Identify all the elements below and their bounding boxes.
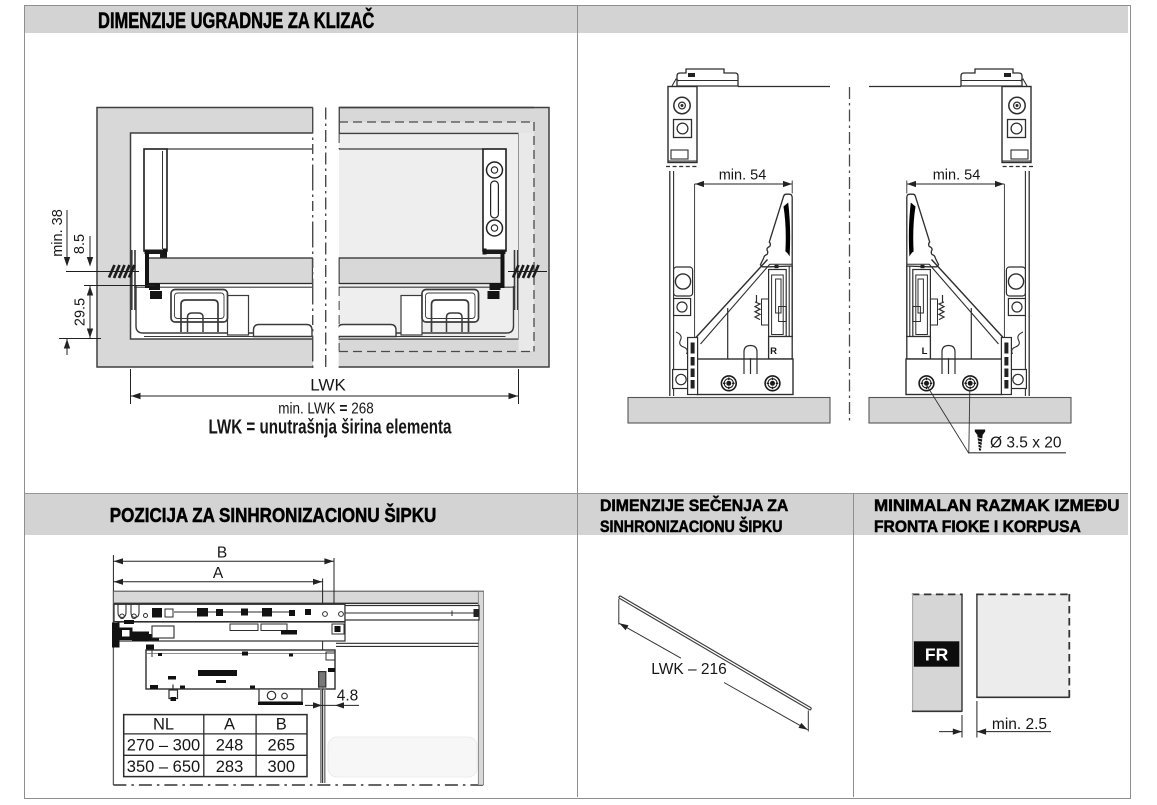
svg-text:Ø 3.5 x 20: Ø 3.5 x 20 <box>990 435 1062 452</box>
svg-text:248: 248 <box>216 737 244 755</box>
svg-text:4.8: 4.8 <box>337 688 359 705</box>
svg-text:R: R <box>770 346 777 357</box>
svg-text:min. 54: min. 54 <box>719 168 767 184</box>
svg-text:350 – 650: 350 – 650 <box>127 758 200 776</box>
svg-text:A: A <box>213 565 224 582</box>
svg-text:B: B <box>217 545 227 562</box>
svg-text:L: L <box>922 346 928 357</box>
svg-text:LWK: LWK <box>310 376 346 395</box>
svg-text:min. 54: min. 54 <box>933 168 981 184</box>
svg-text:A: A <box>224 716 235 734</box>
svg-text:270 – 300: 270 – 300 <box>127 737 200 755</box>
svg-text:B: B <box>276 716 287 734</box>
svg-text:min. 38: min. 38 <box>50 209 66 257</box>
svg-text:29.5: 29.5 <box>73 298 89 326</box>
svg-text:283: 283 <box>216 758 244 776</box>
svg-text:LWK – 216: LWK – 216 <box>651 661 727 678</box>
svg-text:LWK = unutrašnja širina elemen: LWK = unutrašnja širina elementa <box>209 415 453 438</box>
svg-text:300: 300 <box>268 758 296 776</box>
svg-text:8.5: 8.5 <box>72 234 88 254</box>
svg-text:FR: FR <box>925 645 949 665</box>
svg-text:min. 2.5: min. 2.5 <box>992 716 1047 733</box>
svg-text:NL: NL <box>153 716 174 734</box>
svg-text:265: 265 <box>268 737 296 755</box>
